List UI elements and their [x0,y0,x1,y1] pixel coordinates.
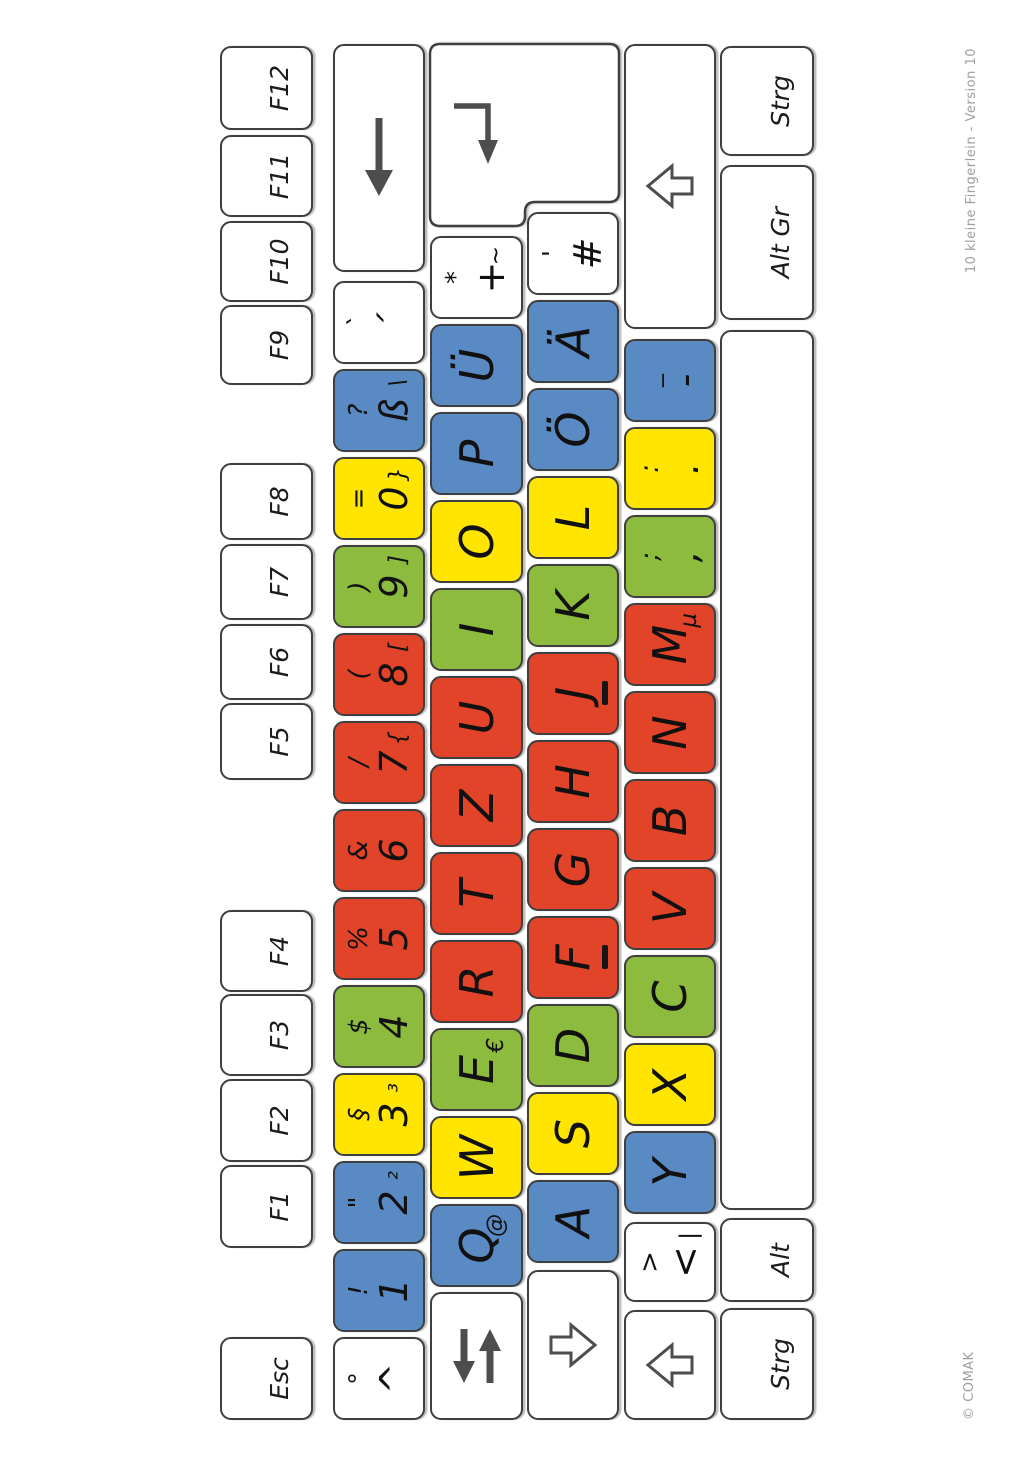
key-label: R [454,966,500,998]
key-minus: _- [624,339,716,422]
key-b: B [624,779,716,862]
key-o: O [430,500,523,583]
key-label: Strg [766,75,795,127]
key-label: F5 [265,726,294,756]
key-6: &6 [333,809,425,892]
key-v: V [624,867,716,950]
key-label: 7 [375,750,413,774]
key-label: . [666,462,704,474]
key-9: )9] [333,545,425,628]
key-label: 0 [375,486,413,510]
key-shift-right [624,44,716,329]
home-row-marker [602,682,608,706]
key-label: E [454,1055,500,1084]
key-label: T [454,879,500,907]
key-k: K [527,564,619,647]
key-altgr-label: { [387,731,410,746]
key-label: F [550,944,596,970]
key-2: "2² [333,1161,425,1244]
copyright-text: © COMAK [962,1351,977,1420]
key-shift-label: * [443,271,469,284]
key-comma: ;, [624,515,716,598]
key-label: S [550,1119,596,1148]
key-label: G [550,852,596,888]
key-i: I [430,588,523,671]
key-u: U [430,676,523,759]
key-label: F6 [265,647,294,677]
key-altgr-label: [ [387,643,410,652]
key-label: P [454,440,500,468]
key-hash: '# [527,212,619,295]
key-x: X [624,1043,716,1126]
key-f7: F7 [220,544,313,620]
key-altgr-label: µ [678,613,701,628]
page: © COMAK 10 kleine Fingerlein - Version 1… [0,0,1034,1462]
key-backspace [333,44,425,272]
key-f10: F10 [220,221,313,302]
key-altgr-label: | [678,1232,701,1240]
key-label: < [666,1246,704,1278]
key-altgr-label: ~ [485,246,508,265]
key-strg-left: Strg [720,1308,814,1420]
key-label: # [569,238,607,270]
key-shift-label: " [346,1197,372,1209]
key-altgr-label: ³ [387,1083,410,1092]
key-label: 8 [375,662,413,686]
key-y: Y [624,1131,716,1214]
tab-icon [451,1327,503,1385]
caps-lock-icon [548,1322,598,1368]
version-text: 10 kleine Fingerlein - Version 10 [964,48,979,448]
key-label: N [647,715,693,749]
key-label: 3 [375,1102,413,1126]
key-label: + [472,262,510,294]
key-label: U [454,701,500,735]
key-7: /7{ [333,721,425,804]
key-label: F2 [265,1105,294,1135]
key-plus: *+~ [430,236,523,319]
key-label: L [550,505,596,531]
key-label: O [454,523,500,559]
keyboard-diagram: © COMAK 10 kleine Fingerlein - Version 1… [0,0,1034,1462]
key-label: A [550,1206,596,1237]
key-acute: `´ [333,281,425,364]
key-8: (8[ [333,633,425,716]
key-label: - [666,374,704,388]
key-shift-label: _ [637,374,663,387]
key-angle: ><| [624,1222,716,1302]
key-label: Alt [766,1243,795,1277]
key-label: F8 [265,486,294,516]
key-label: F11 [265,153,294,199]
key-label: F7 [265,567,294,597]
key-label: ´ [375,313,413,332]
key-label: F12 [265,65,294,111]
key-label: F3 [265,1020,294,1050]
key-shift-label: ° [346,1372,372,1385]
key-shift-label: ! [346,1285,372,1295]
key-shift-left [624,1310,716,1420]
key-j: J [527,652,619,735]
key-shift-label: > [637,1251,663,1273]
key-f3: F3 [220,994,313,1076]
key-label: J [550,687,596,701]
key-shift-label: ) [346,581,372,591]
key-altgr-label: @ [485,1214,508,1237]
key-d: D [527,1004,619,1087]
key-shift-label: ; [637,552,663,561]
key-label: F9 [265,330,294,360]
key-label: W [454,1135,500,1180]
key-altgr-label: € [485,1038,508,1053]
key-m: Mµ [624,603,716,686]
home-row-marker [602,946,608,970]
key-t: T [430,852,523,935]
key-label: Esc [265,1357,294,1400]
key-f4: F4 [220,910,313,992]
key-l: L [527,476,619,559]
key-label: Ä [550,326,596,357]
key-uuml: Ü [430,324,523,407]
key-f: F [527,916,619,999]
key-caret: °^ [333,1337,425,1420]
key-5: %5 [333,897,425,980]
key-alt: Alt [720,1218,814,1302]
key-e: E€ [430,1028,523,1111]
key-shift-label: ` [346,316,372,329]
key-label: , [666,550,704,562]
key-strg-right: Strg [720,46,814,156]
key-f11: F11 [220,135,313,217]
key-shift-label: : [637,464,663,473]
key-q: Q@ [430,1204,523,1287]
key-label: Ö [550,411,596,447]
key-0: =0} [333,457,425,540]
key-label: Strg [766,1338,795,1390]
key-w: W [430,1116,523,1199]
key-label: 9 [375,574,413,598]
key-4: $4 [333,985,425,1068]
key-label: 1 [375,1278,413,1302]
key-shift-label: / [346,758,372,767]
key-p: P [430,412,523,495]
key-f12: F12 [220,46,313,130]
key-altgr-label: \ [387,379,410,387]
key-label: X [647,1069,693,1101]
key-enter [428,42,621,228]
key-label: I [454,623,500,637]
key-label: Z [454,790,500,822]
key-n: N [624,691,716,774]
key-label: 5 [375,926,413,950]
key-label: Y [647,1158,693,1186]
key-r: R [430,940,523,1023]
key-altgr-label: } [387,467,410,482]
key-h: H [527,740,619,823]
key-altgr-label: ] [387,555,410,564]
key-f9: F9 [220,305,313,385]
key-shift-label: ? [346,404,372,418]
key-label: H [550,764,596,799]
key-label: M [647,625,693,665]
key-shift-label: $ [346,1018,372,1035]
key-label: 2 [375,1190,413,1214]
backspace-icon [359,116,399,200]
key-ouml: Ö [527,388,619,471]
key-shift-label: = [346,488,372,510]
key-z: Z [430,764,523,847]
key-tab [430,1292,523,1420]
key-f1: F1 [220,1165,313,1248]
key-label: ß [375,399,413,423]
key-1: !1 [333,1249,425,1332]
key-label: D [550,1028,596,1063]
key-label: F1 [265,1191,294,1221]
key-f2: F2 [220,1079,313,1162]
key-space [720,330,814,1210]
key-f5: F5 [220,703,313,780]
key-label: F4 [265,936,294,966]
key-shift-label: % [346,926,372,951]
key-shift-label: ( [346,669,372,679]
key-c: C [624,955,716,1038]
key-3: §3³ [333,1073,425,1156]
key-s: S [527,1092,619,1175]
key-label: V [647,893,693,924]
key-alt-gr: Alt Gr [720,165,814,320]
key-shift-label: & [346,840,372,860]
key-label: 4 [375,1014,413,1038]
key-eszett: ?ß\ [333,369,425,452]
key-label: ^ [375,1363,413,1395]
key-label: K [550,590,596,620]
key-auml: Ä [527,300,619,383]
key-shift-label: § [346,1108,372,1121]
key-altgr-label: ² [387,1171,410,1180]
key-label: B [647,805,693,837]
shift-icon [645,164,695,210]
key-caps-lock [527,1270,619,1420]
key-label: 6 [375,838,413,862]
key-shift-label: ' [540,250,566,257]
shift-icon [645,1342,695,1388]
key-period: :. [624,427,716,510]
key-label: Ü [454,349,500,383]
key-a: A [527,1180,619,1263]
key-label: F10 [265,238,294,284]
key-f8: F8 [220,463,313,540]
key-g: G [527,828,619,911]
key-esc: Esc [220,1337,313,1420]
key-f6: F6 [220,624,313,700]
key-label: Alt Gr [766,207,795,278]
key-label: C [647,980,693,1012]
